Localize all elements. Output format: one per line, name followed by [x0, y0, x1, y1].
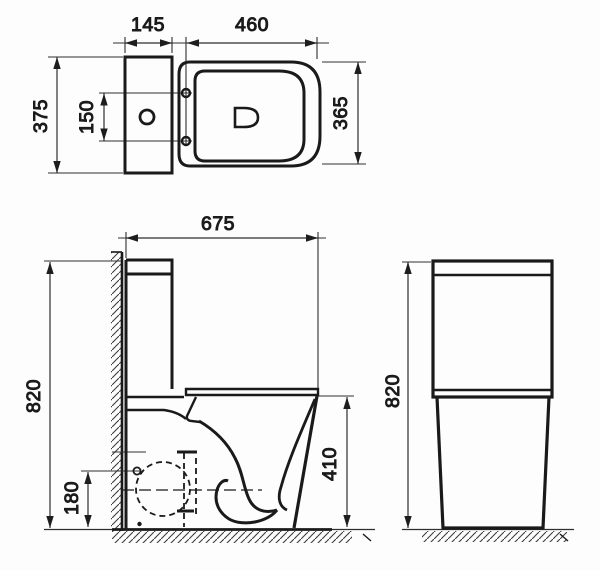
dim-label-tank-depth: 145	[131, 14, 165, 36]
seat-bracket	[187, 397, 200, 422]
trap-dashed-loop	[136, 462, 190, 516]
top-view-seat-inner-outline	[195, 71, 304, 161]
flush-channel-line	[126, 410, 186, 419]
dim-label-rim-height: 410	[319, 447, 341, 481]
dim-label-bowl-width: 365	[330, 96, 352, 130]
side-view-extension-lines	[44, 232, 354, 471]
floor-hatch-end-tick-side	[363, 534, 371, 541]
floor-fixing-dot	[137, 522, 141, 526]
seat-profile	[186, 389, 318, 395]
front-view-base-outline	[437, 397, 549, 528]
top-view-tank-outline	[125, 57, 172, 173]
dim-label-outlet-height: 180	[61, 481, 83, 515]
front-view: 820	[382, 261, 574, 542]
wall-hatch	[111, 252, 122, 531]
side-view: 675 820 180 410	[23, 213, 375, 543]
sump-curve	[216, 480, 277, 522]
dim-label-overall-height-side: 820	[23, 379, 45, 413]
dim-label-seat-length: 460	[235, 14, 269, 36]
top-view: 145 460 375 150 365	[30, 14, 366, 173]
bowl-inner-back-curve	[199, 421, 277, 512]
front-view-cistern-outline	[433, 261, 552, 397]
floor-hatch-side	[112, 531, 352, 543]
bowl-front-outer-line	[294, 396, 317, 528]
technical-drawing-sheet: 145 460 375 150 365	[0, 0, 600, 571]
floor-hatch-front	[422, 531, 567, 542]
dim-label-overall-width: 375	[30, 99, 52, 133]
flush-button-circle	[140, 110, 154, 124]
toilet-dimension-drawing: 145 460 375 150 365	[0, 0, 600, 571]
water-spot-shape	[235, 108, 258, 127]
bowl-front-inner-line	[279, 399, 315, 510]
cistern-profile	[126, 260, 172, 389]
dim-label-overall-height-front: 820	[382, 374, 404, 408]
dim-label-holes-spacing: 150	[76, 100, 98, 134]
dim-label-overall-depth: 675	[201, 213, 235, 235]
